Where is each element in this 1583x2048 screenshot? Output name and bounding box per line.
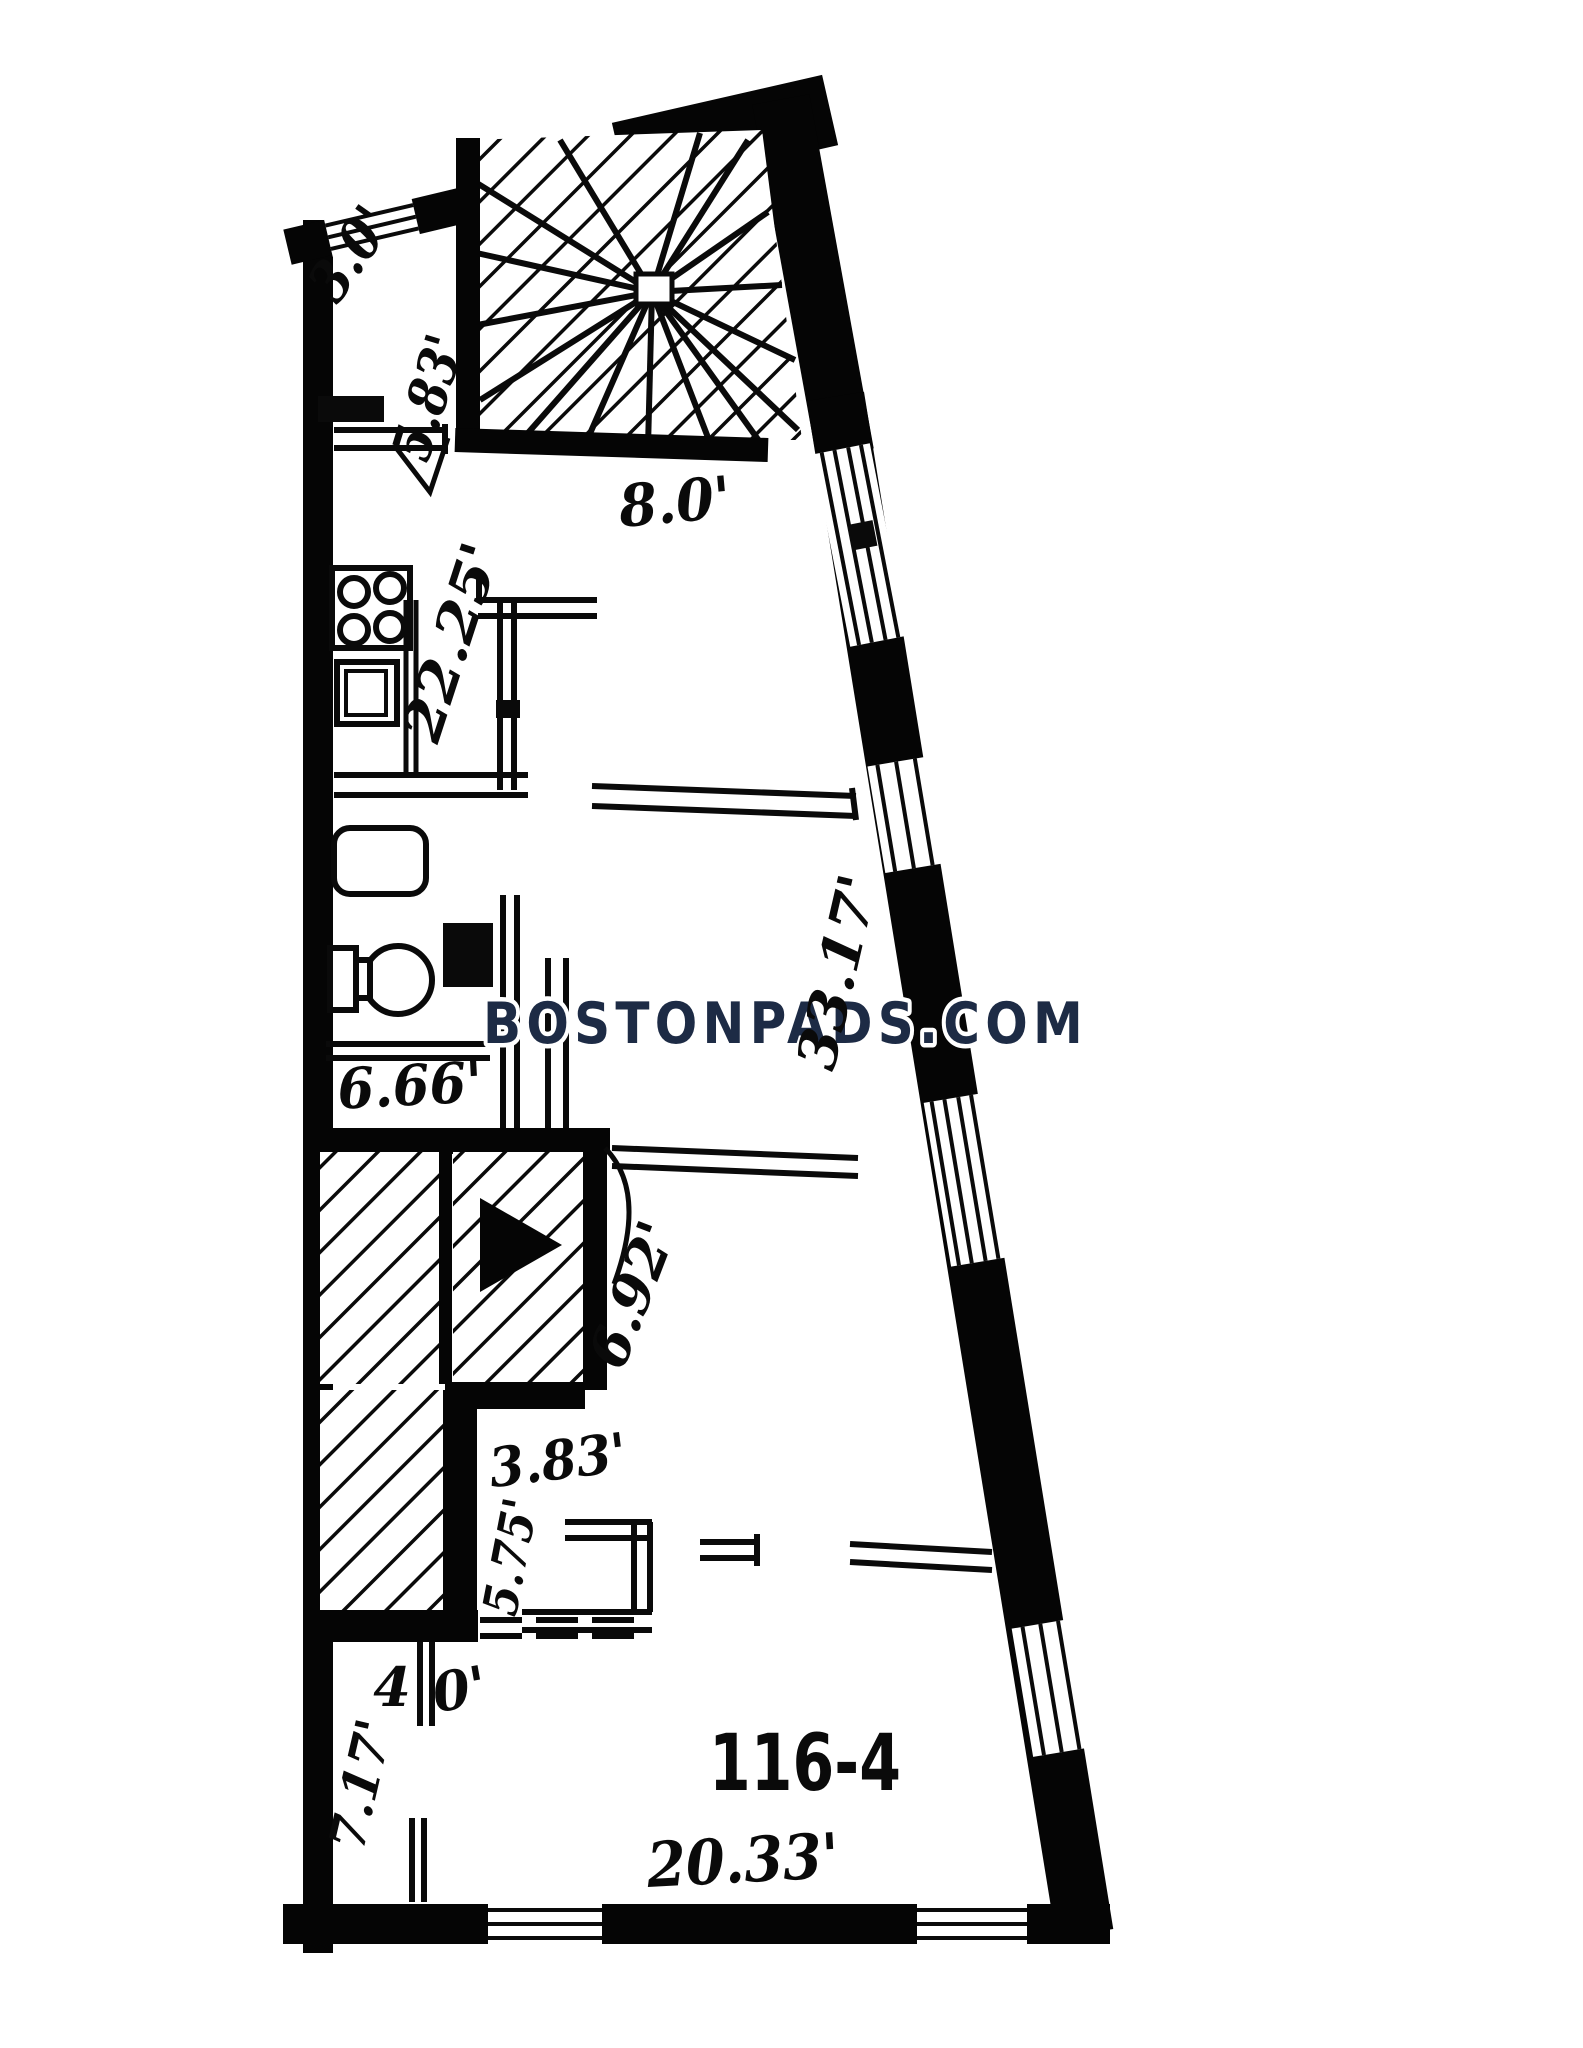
floor-plan-drawing: BOSTONPADS.COM 3.0' 5.83' 8.0' 22.25' 6.… — [0, 0, 1583, 2048]
stairwell-south-wall — [455, 440, 768, 450]
west-wall-stub — [318, 396, 384, 422]
stair-newel — [636, 274, 672, 304]
stove-icon — [332, 568, 410, 648]
shower-icon — [443, 923, 493, 987]
dim-hall-depth: 5.75' — [472, 1494, 549, 1621]
tub-icon — [334, 828, 426, 894]
east-window-2-icon — [867, 757, 942, 873]
dim-hall-width: 3.83' — [485, 1420, 630, 1500]
sink-icon — [337, 662, 397, 724]
top-stairwell — [394, 130, 802, 492]
dim-south-wall: 20.33' — [644, 1819, 840, 1902]
dim-door-right: 0' — [427, 1653, 491, 1725]
middle-staircase — [318, 1128, 629, 1642]
east-window-1-icon — [813, 443, 907, 646]
dim-door-left: 4 — [373, 1655, 411, 1719]
dim-stair-top-width: 8.0' — [615, 463, 733, 541]
bostonpads-watermark: BOSTONPADS.COM — [483, 991, 1088, 1057]
lower-hatch — [320, 1390, 443, 1612]
kitchen-door-stop — [496, 700, 520, 718]
south-window-1-icon — [488, 1903, 602, 1945]
unit-number: 116-4 — [709, 1719, 901, 1809]
south-window-2-icon — [917, 1903, 1027, 1945]
toilet-icon — [330, 946, 432, 1014]
floor-plan-page: BOSTONPADS.COM 3.0' 5.83' 8.0' 22.25' 6.… — [0, 0, 1583, 2048]
stair-left-hatch — [320, 1152, 439, 1384]
dim-bath-width: 6.66' — [336, 1049, 484, 1122]
